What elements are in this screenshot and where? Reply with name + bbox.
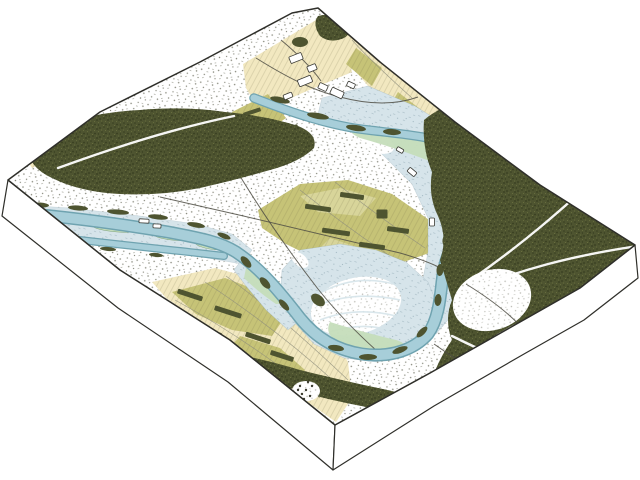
orchard-tree-dot [311, 385, 313, 387]
orchard-tree-dot [297, 389, 299, 391]
isometric-map-block [0, 0, 640, 480]
orchard-tree-dot [305, 389, 307, 391]
riverbank-tree-clump [292, 37, 308, 47]
orchard-tree-dot [301, 393, 303, 395]
building [139, 219, 149, 224]
illustration-canvas [0, 0, 640, 480]
map-surface [6, 8, 638, 425]
orchard-tree-dot [307, 381, 309, 383]
riverbank-tree-clump [359, 354, 377, 360]
building [153, 224, 161, 228]
orchard-tree-dot [299, 385, 301, 387]
orchard-tree-dot [309, 395, 311, 397]
hedgerow [377, 210, 388, 219]
building [430, 218, 435, 226]
